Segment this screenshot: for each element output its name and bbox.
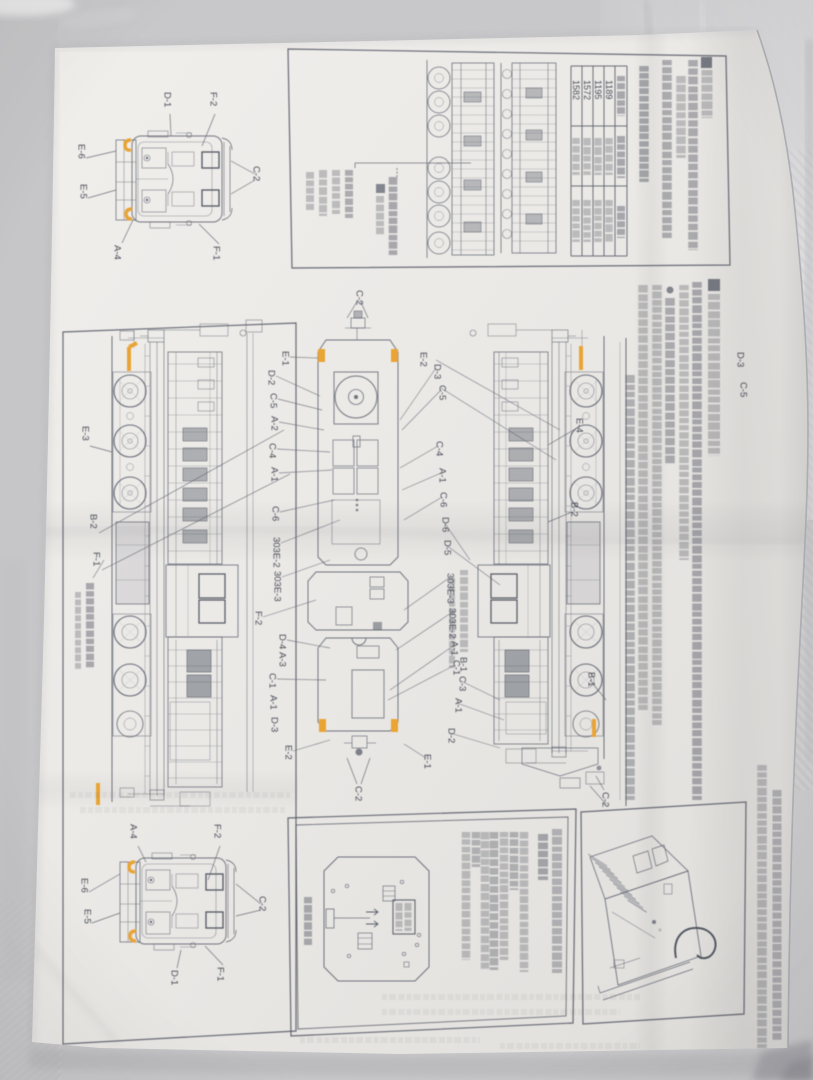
svg-text:A-4: A-4 — [112, 245, 123, 260]
svg-text:B-2: B-2 — [569, 502, 580, 517]
svg-text:A-4: A-4 — [128, 824, 139, 839]
svg-text:303E-3: 303E-3 — [272, 571, 283, 602]
svg-text:C-5: C-5 — [268, 393, 279, 408]
svg-text:D-2: D-2 — [446, 728, 457, 743]
svg-text:C-2: C-2 — [257, 896, 268, 911]
svg-text:E-6: E-6 — [76, 144, 87, 159]
svg-text:C-6: C-6 — [438, 492, 449, 507]
svg-text:B-1: B-1 — [458, 657, 469, 672]
svg-text:F-1: F-1 — [211, 246, 222, 260]
svg-text:E-2: E-2 — [283, 745, 294, 760]
svg-text:F-1: F-1 — [215, 967, 226, 981]
svg-text:F-1: F-1 — [91, 552, 102, 566]
svg-text:E-5: E-5 — [82, 909, 93, 924]
svg-text:C-2: C-2 — [354, 290, 365, 305]
svg-text:C-4: C-4 — [434, 441, 445, 456]
svg-text:A-3: A-3 — [277, 652, 288, 667]
svg-text:B-1: B-1 — [586, 672, 597, 687]
svg-text:C-1: C-1 — [267, 673, 278, 688]
svg-text:D-4: D-4 — [277, 634, 288, 649]
svg-text:1582: 1582 — [571, 80, 581, 100]
svg-text:E-5: E-5 — [78, 184, 89, 199]
svg-text:E-3: E-3 — [80, 426, 91, 441]
svg-text:F-2: F-2 — [253, 611, 264, 625]
svg-text:F-2: F-2 — [212, 824, 223, 838]
svg-text:1572: 1572 — [582, 80, 592, 100]
svg-text:1189: 1189 — [604, 80, 614, 99]
svg-text:C-2: C-2 — [600, 792, 611, 807]
svg-text:C-2: C-2 — [353, 786, 364, 801]
svg-text:A-2: A-2 — [269, 416, 280, 431]
svg-text:D-3: D-3 — [735, 352, 746, 367]
svg-text:E-2: E-2 — [418, 352, 429, 367]
svg-text:D-5: D-5 — [442, 540, 453, 555]
svg-text:F-2: F-2 — [208, 92, 219, 106]
svg-text:E-6: E-6 — [79, 878, 90, 893]
svg-text:D-1: D-1 — [169, 970, 180, 985]
svg-text:303E-2: 303E-2 — [271, 537, 282, 568]
svg-text:A-1: A-1 — [453, 698, 464, 713]
svg-text:D-6: D-6 — [440, 517, 451, 532]
svg-text:B-2: B-2 — [88, 514, 99, 529]
svg-text:E-1: E-1 — [280, 351, 291, 366]
svg-text:1195: 1195 — [593, 80, 603, 99]
svg-text:E-4: E-4 — [574, 418, 585, 433]
svg-text:C-4: C-4 — [267, 443, 278, 458]
svg-text:C-6: C-6 — [270, 506, 281, 521]
svg-text:A-1: A-1 — [268, 695, 279, 710]
svg-text:D-3: D-3 — [269, 717, 280, 732]
svg-text:A-1: A-1 — [269, 467, 280, 482]
svg-text:D-1: D-1 — [162, 92, 173, 107]
svg-text:D-2: D-2 — [266, 370, 277, 385]
svg-text:C-5: C-5 — [738, 382, 749, 397]
svg-text:C-2: C-2 — [251, 166, 262, 181]
svg-text:A-1: A-1 — [437, 468, 448, 483]
